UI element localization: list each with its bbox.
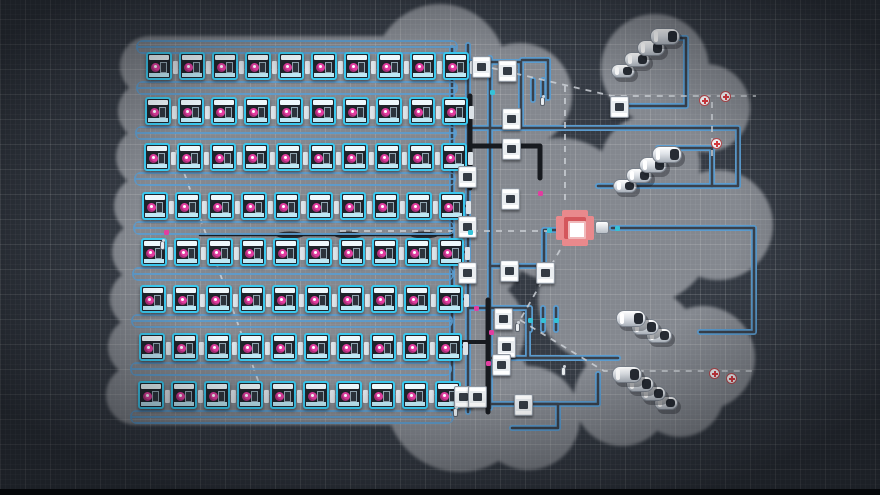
product-indicator: [180, 203, 189, 212]
machine-base-plate: [148, 118, 168, 122]
product-indicator: [448, 63, 457, 72]
machine-base-plate: [314, 73, 334, 77]
cyan-machine[interactable]: [339, 238, 365, 266]
cyan-machine[interactable]: [409, 97, 435, 125]
machine-top-plate: [211, 195, 231, 200]
product-indicator: [246, 203, 255, 212]
machine-top-plate: [145, 195, 165, 200]
machine-core: [507, 145, 516, 153]
product-indicator: [276, 344, 285, 353]
machine-top-plate: [213, 146, 233, 151]
white-machine[interactable]: [514, 394, 533, 416]
medkit-icon: [699, 95, 710, 106]
machine-base-plate: [177, 259, 197, 263]
cyan-machine[interactable]: [272, 285, 298, 313]
white-machine[interactable]: [458, 216, 477, 238]
machine-top-plate: [244, 195, 264, 200]
machine-core: [502, 343, 511, 351]
product-indicator: [442, 296, 451, 305]
cyan-machine[interactable]: [375, 143, 401, 171]
cyan-machine[interactable]: [370, 333, 396, 361]
belt-item: [490, 90, 495, 95]
cyan-machine[interactable]: [369, 381, 395, 409]
machine-slot: [153, 343, 160, 354]
engine-intake: [642, 379, 651, 389]
cyan-machine[interactable]: [437, 285, 463, 313]
product-indicator: [147, 203, 156, 212]
machine-slot: [319, 295, 326, 306]
machine-base-plate: [374, 306, 394, 310]
cyan-machine[interactable]: [273, 238, 299, 266]
cyan-machine[interactable]: [270, 381, 296, 409]
machine-core: [463, 173, 472, 181]
machine-base-plate: [339, 402, 359, 406]
cyan-machine[interactable]: [376, 97, 402, 125]
machine-top-plate: [446, 55, 466, 60]
white-machine[interactable]: [472, 56, 491, 78]
cyan-machine[interactable]: [145, 97, 171, 125]
machine-top-plate: [374, 288, 394, 293]
cyan-machine[interactable]: [205, 333, 231, 361]
machine-base-plate: [244, 213, 264, 217]
cyan-machine[interactable]: [410, 52, 436, 80]
belt-item: [554, 318, 559, 323]
engine-intake: [666, 399, 675, 407]
machine-base-plate: [175, 354, 195, 358]
cyan-machine[interactable]: [271, 333, 297, 361]
machine-base-plate: [346, 118, 366, 122]
machine-slot: [350, 391, 357, 402]
machine-base-plate: [413, 73, 433, 77]
belt-item: [615, 226, 620, 231]
machine-slot: [220, 295, 227, 306]
machine-top-plate: [409, 195, 429, 200]
product-indicator: [376, 296, 385, 305]
cyan-machine[interactable]: [344, 52, 370, 80]
product-indicator: [248, 154, 257, 163]
machine-slot: [156, 202, 163, 213]
belt-bundle: [131, 314, 453, 328]
machine-base-plate: [445, 118, 465, 122]
cyan-machine[interactable]: [206, 285, 232, 313]
cyan-machine[interactable]: [237, 381, 263, 409]
machine-base-plate: [176, 306, 196, 310]
machine-top-plate: [405, 384, 425, 389]
product-indicator: [249, 108, 258, 117]
cyan-machine[interactable]: [371, 285, 397, 313]
machine-top-plate: [178, 195, 198, 200]
machine-base-plate: [376, 213, 396, 217]
product-indicator: [243, 344, 252, 353]
white-machine[interactable]: [458, 262, 477, 284]
product-indicator: [277, 296, 286, 305]
belt-item: [486, 361, 491, 366]
machine-slot: [226, 62, 233, 73]
machine-top-plate: [445, 100, 465, 105]
machine-slot: [417, 343, 424, 354]
machine-top-plate: [148, 100, 168, 105]
product-indicator: [380, 154, 389, 163]
machine-top-plate: [175, 336, 195, 341]
product-indicator: [244, 296, 253, 305]
machine-core: [503, 67, 512, 75]
cyan-machine[interactable]: [340, 192, 366, 220]
white-machine[interactable]: [500, 260, 519, 282]
machine-base-plate: [345, 164, 365, 168]
product-indicator: [278, 249, 287, 258]
engine-machine[interactable]: [616, 310, 646, 327]
machine-base-plate: [341, 306, 361, 310]
cyan-machine[interactable]: [239, 285, 265, 313]
machine-top-plate: [141, 384, 161, 389]
machine-top-plate: [444, 146, 464, 151]
product-indicator: [414, 108, 423, 117]
product-indicator: [382, 63, 391, 72]
machine-slot: [420, 202, 427, 213]
medkit-icon: [726, 373, 737, 384]
machine-top-plate: [281, 55, 301, 60]
cyan-machine[interactable]: [404, 285, 430, 313]
machine-slot: [255, 202, 262, 213]
cyan-machine[interactable]: [204, 381, 230, 409]
machine-slot: [259, 62, 266, 73]
engine-intake: [634, 313, 643, 324]
machine-core: [519, 401, 528, 409]
machine-base-plate: [147, 164, 167, 168]
cyan-machine[interactable]: [336, 381, 362, 409]
cyan-machine[interactable]: [241, 192, 267, 220]
machine-slot: [152, 391, 159, 402]
cyan-machine[interactable]: [373, 192, 399, 220]
machine-base-plate: [306, 402, 326, 406]
machine-slot: [291, 107, 298, 118]
red-machine[interactable]: [556, 210, 594, 246]
machine-base-plate: [207, 402, 227, 406]
machine-base-plate: [214, 118, 234, 122]
machine-base-plate: [379, 118, 399, 122]
machine-top-plate: [181, 100, 201, 105]
machine-slot: [324, 107, 331, 118]
machine-top-plate: [143, 288, 163, 293]
cyan-machine[interactable]: [142, 192, 168, 220]
machine-base-plate: [280, 118, 300, 122]
cyan-machine[interactable]: [311, 52, 337, 80]
machine-top-plate: [341, 288, 361, 293]
machine-top-plate: [214, 100, 234, 105]
machine-base-plate: [407, 306, 427, 310]
machine-slot: [457, 62, 464, 73]
cyan-machine[interactable]: [277, 97, 303, 125]
machine-top-plate: [306, 384, 326, 389]
engine-intake: [668, 31, 677, 42]
belt-bundle: [130, 410, 454, 424]
machine-top-plate: [378, 146, 398, 151]
engine-intake: [654, 389, 663, 398]
machine-top-plate: [279, 146, 299, 151]
cyan-machine[interactable]: [177, 143, 203, 171]
engine-machine[interactable]: [612, 366, 642, 383]
machine-base-plate: [308, 306, 328, 310]
machine-top-plate: [147, 146, 167, 151]
cyan-machine[interactable]: [138, 381, 164, 409]
machine-top-plate: [246, 146, 266, 151]
cyan-machine[interactable]: [403, 333, 429, 361]
machine-slot: [219, 343, 226, 354]
belt-item: [528, 318, 533, 323]
white-machine[interactable]: [536, 262, 555, 284]
machine-slot: [450, 343, 457, 354]
belt-item: [547, 228, 552, 233]
product-indicator: [381, 108, 390, 117]
cyan-machine[interactable]: [173, 285, 199, 313]
machine-top-plate: [275, 288, 295, 293]
cyan-machine[interactable]: [274, 192, 300, 220]
machine-slot: [159, 107, 166, 118]
machine-slot: [288, 202, 295, 213]
product-indicator: [311, 249, 320, 258]
machine-slot: [292, 62, 299, 73]
machine-core: [541, 269, 550, 277]
cyan-machine[interactable]: [211, 97, 237, 125]
cyan-machine[interactable]: [146, 52, 172, 80]
engine-machine[interactable]: [650, 28, 680, 45]
cyan-machine[interactable]: [405, 238, 431, 266]
machine-base-plate: [274, 354, 294, 358]
product-indicator: [211, 296, 220, 305]
machine-core: [507, 115, 516, 123]
machine-base-plate: [281, 73, 301, 77]
machine-slot: [191, 153, 198, 164]
product-indicator: [151, 63, 160, 72]
machine-base-plate: [412, 118, 432, 122]
engine-intake: [630, 369, 639, 380]
cyan-machine[interactable]: [212, 52, 238, 80]
red-machine-core: [564, 217, 586, 239]
machine-top-plate: [346, 100, 366, 105]
product-indicator: [410, 249, 419, 258]
machine-slot: [389, 153, 396, 164]
machine-top-plate: [176, 288, 196, 293]
cyan-machine[interactable]: [179, 52, 205, 80]
product-indicator: [275, 392, 284, 401]
machine-base-plate: [446, 73, 466, 77]
product-indicator: [374, 392, 383, 401]
cyan-machine[interactable]: [245, 52, 271, 80]
product-indicator: [377, 249, 386, 258]
white-machine[interactable]: [492, 354, 511, 376]
product-indicator: [149, 154, 158, 163]
machine-base-plate: [248, 73, 268, 77]
machine-slot: [453, 202, 460, 213]
machine-top-plate: [408, 241, 428, 246]
machine-top-plate: [280, 100, 300, 105]
cyan-machine[interactable]: [178, 97, 204, 125]
machine-top-plate: [207, 384, 227, 389]
machine-slot: [160, 62, 167, 73]
machine-core: [459, 393, 468, 401]
machine-core: [506, 195, 515, 203]
cyan-machine[interactable]: [309, 143, 335, 171]
machine-slot: [186, 343, 193, 354]
belt-bundle: [135, 126, 457, 140]
machine-base-plate: [240, 402, 260, 406]
product-indicator: [212, 249, 221, 258]
machine-slot: [391, 62, 398, 73]
white-machine[interactable]: [502, 108, 521, 130]
product-indicator: [312, 203, 321, 212]
machine-top-plate: [277, 195, 297, 200]
belt-bundle: [136, 81, 458, 95]
machine-base-plate: [215, 73, 235, 77]
machine-base-plate: [149, 73, 169, 77]
cyan-machine[interactable]: [175, 192, 201, 220]
cyan-machine[interactable]: [372, 238, 398, 266]
product-indicator: [447, 108, 456, 117]
medkit-icon: [709, 368, 720, 379]
machine-slot: [218, 391, 225, 402]
product-indicator: [444, 203, 453, 212]
cyan-machine[interactable]: [303, 381, 329, 409]
machine-core: [463, 269, 472, 277]
machine-top-plate: [413, 55, 433, 60]
product-indicator: [283, 63, 292, 72]
machine-base-plate: [378, 164, 398, 168]
worker-unit[interactable]: [540, 97, 545, 106]
product-indicator: [342, 344, 351, 353]
product-indicator: [210, 344, 219, 353]
cyan-machine[interactable]: [343, 97, 369, 125]
machine-top-plate: [209, 288, 229, 293]
machine-core: [497, 361, 506, 369]
machine-base-plate: [405, 402, 425, 406]
cyan-machine[interactable]: [144, 143, 170, 171]
machine-base-plate: [247, 118, 267, 122]
cyan-machine[interactable]: [278, 52, 304, 80]
product-indicator: [178, 296, 187, 305]
product-indicator: [242, 392, 251, 401]
machine-slot: [422, 153, 429, 164]
machine-top-plate: [312, 146, 332, 151]
cyan-machine[interactable]: [243, 143, 269, 171]
machine-top-plate: [406, 336, 426, 341]
cyan-machine[interactable]: [306, 238, 332, 266]
cyan-machine[interactable]: [338, 285, 364, 313]
product-indicator: [182, 154, 191, 163]
white-machine[interactable]: [502, 138, 521, 160]
machine-top-plate: [243, 241, 263, 246]
white-machine[interactable]: [494, 308, 513, 330]
machine-top-plate: [442, 195, 462, 200]
cyan-machine[interactable]: [171, 381, 197, 409]
cyan-machine[interactable]: [174, 238, 200, 266]
cyan-machine[interactable]: [406, 192, 432, 220]
cyan-machine[interactable]: [342, 143, 368, 171]
machine-slot: [154, 295, 161, 306]
cyan-machine[interactable]: [377, 52, 403, 80]
machine-base-plate: [213, 164, 233, 168]
cyan-machine[interactable]: [305, 285, 331, 313]
cyan-machine[interactable]: [208, 192, 234, 220]
machine-top-plate: [177, 241, 197, 246]
cyan-machine[interactable]: [172, 333, 198, 361]
white-machine[interactable]: [458, 166, 477, 188]
machine-top-plate: [210, 241, 230, 246]
machine-base-plate: [342, 259, 362, 263]
machine-slot: [390, 107, 397, 118]
cyan-machine[interactable]: [238, 333, 264, 361]
cyan-machine[interactable]: [408, 143, 434, 171]
machine-top-plate: [240, 384, 260, 389]
white-machine[interactable]: [501, 188, 520, 210]
cyan-machine[interactable]: [443, 52, 469, 80]
machine-top-plate: [340, 336, 360, 341]
machine-base-plate: [340, 354, 360, 358]
machine-core: [505, 267, 514, 275]
cyan-machine[interactable]: [337, 333, 363, 361]
machine-top-plate: [373, 336, 393, 341]
worker-unit[interactable]: [453, 408, 458, 417]
cyan-machine[interactable]: [442, 97, 468, 125]
red-machine-tab: [586, 216, 594, 240]
machine-slot: [193, 62, 200, 73]
product-indicator: [343, 296, 352, 305]
cyan-machine[interactable]: [140, 285, 166, 313]
machine-base-plate: [211, 213, 231, 217]
product-indicator: [409, 296, 418, 305]
engine-machine[interactable]: [652, 146, 682, 163]
machine-slot: [455, 153, 462, 164]
machine-top-plate: [273, 384, 293, 389]
worker-unit[interactable]: [160, 241, 165, 250]
cyan-machine[interactable]: [139, 333, 165, 361]
product-indicator: [179, 249, 188, 258]
cyan-machine[interactable]: [310, 97, 336, 125]
machine-top-plate: [242, 288, 262, 293]
cyan-machine[interactable]: [244, 97, 270, 125]
belt-bundle: [130, 362, 452, 376]
cyan-machine[interactable]: [240, 238, 266, 266]
machine-base-plate: [145, 213, 165, 217]
product-indicator: [440, 392, 449, 401]
cyan-machine[interactable]: [210, 143, 236, 171]
white-machine[interactable]: [498, 60, 517, 82]
machine-base-plate: [312, 164, 332, 168]
white-machine[interactable]: [468, 386, 487, 408]
cyan-machine[interactable]: [304, 333, 330, 361]
cyan-machine[interactable]: [402, 381, 428, 409]
machine-slot: [386, 248, 393, 259]
product-indicator: [344, 249, 353, 258]
worker-unit[interactable]: [561, 367, 566, 376]
machine-slot: [317, 391, 324, 402]
cyan-machine[interactable]: [307, 192, 333, 220]
white-machine[interactable]: [610, 96, 629, 118]
machine-slot: [318, 343, 325, 354]
machine-base-plate: [380, 73, 400, 77]
product-indicator: [411, 203, 420, 212]
cyan-machine[interactable]: [436, 333, 462, 361]
product-indicator: [348, 108, 357, 117]
worker-unit[interactable]: [515, 323, 520, 332]
product-indicator: [184, 63, 193, 72]
cyan-machine[interactable]: [276, 143, 302, 171]
cyan-machine[interactable]: [207, 238, 233, 266]
machine-base-plate: [242, 306, 262, 310]
product-indicator: [315, 108, 324, 117]
machine-top-plate: [180, 146, 200, 151]
product-indicator: [375, 344, 384, 353]
machine-top-plate: [376, 195, 396, 200]
